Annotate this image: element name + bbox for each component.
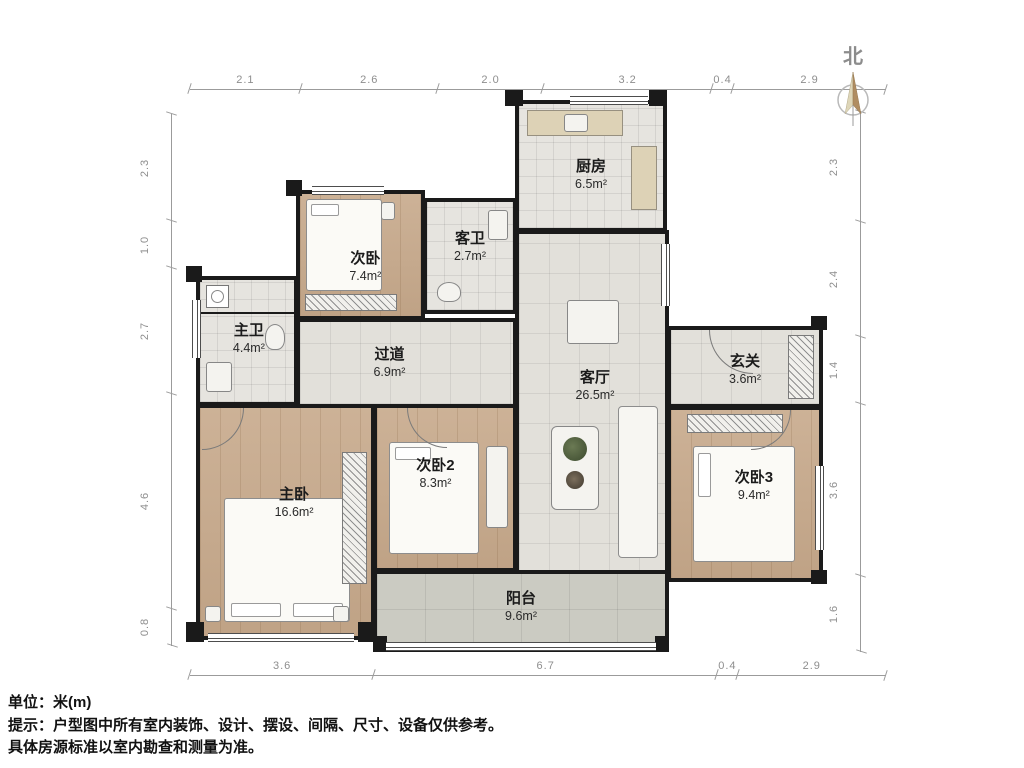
door-icon bbox=[202, 408, 244, 450]
room-name: 客卫 bbox=[454, 227, 486, 248]
room-foyer: 玄关 3.6m² bbox=[667, 326, 823, 408]
dim-segment: 2.6 bbox=[301, 74, 438, 90]
north-label: 北 bbox=[843, 40, 863, 69]
vase-icon bbox=[566, 471, 584, 489]
room-master-bathroom: 主卫 4.4m² bbox=[196, 276, 298, 406]
room-balcony: 阳台 9.6m² bbox=[373, 570, 669, 652]
toilet-icon bbox=[437, 282, 461, 302]
dim-value: 2.4 bbox=[828, 270, 840, 288]
dim-segment: 0.4 bbox=[717, 660, 737, 676]
nightstand-icon bbox=[205, 606, 221, 622]
room-bedroom-north: 次卧 7.4m² bbox=[296, 190, 425, 320]
room-area: 4.4m² bbox=[233, 341, 265, 355]
wall-corner bbox=[649, 90, 667, 106]
dim-segment: 0.4 bbox=[712, 74, 733, 90]
wall-corner bbox=[655, 636, 669, 652]
dim-value: 2.9 bbox=[803, 660, 821, 672]
room-name: 次卧3 bbox=[735, 466, 773, 487]
dim-segment: 2.4 bbox=[845, 222, 861, 337]
bathroom-sink-icon bbox=[206, 362, 232, 392]
dimension-line-top: 2.1 2.6 2.0 3.2 0.4 2.9 bbox=[190, 74, 886, 90]
dim-segment: 2.3 bbox=[156, 114, 172, 221]
desk-icon bbox=[486, 446, 508, 528]
dim-value: 2.6 bbox=[360, 74, 378, 86]
shoe-cabinet-icon bbox=[788, 335, 814, 399]
room-name: 厨房 bbox=[575, 155, 607, 176]
room-area: 9.4m² bbox=[735, 488, 773, 502]
dim-value: 2.7 bbox=[139, 322, 151, 340]
nightstand-icon bbox=[333, 606, 349, 622]
nightstand-icon bbox=[381, 202, 395, 220]
dining-table-icon bbox=[567, 300, 619, 344]
door-icon bbox=[751, 410, 791, 450]
room-area: 6.9m² bbox=[373, 365, 405, 379]
room-label: 玄关 3.6m² bbox=[729, 350, 761, 386]
dim-segment: 0.8 bbox=[156, 609, 172, 646]
coffee-table-icon bbox=[551, 426, 599, 510]
room-master-bedroom: 主卧 16.6m² bbox=[196, 404, 375, 640]
compass-icon bbox=[830, 68, 876, 131]
room-area: 16.6m² bbox=[275, 505, 314, 519]
dim-segment: 3.6 bbox=[190, 660, 374, 676]
wall-corner bbox=[286, 180, 302, 196]
room-bedroom-2: 次卧2 8.3m² bbox=[373, 404, 517, 572]
room-name: 主卧 bbox=[275, 483, 314, 504]
dim-segment: 2.0 bbox=[438, 74, 543, 90]
dimension-line-bottom: 3.6 6.7 0.4 2.9 bbox=[190, 660, 886, 676]
dim-value: 6.7 bbox=[537, 660, 555, 672]
dim-value: 0.4 bbox=[718, 660, 736, 672]
window-icon bbox=[570, 96, 648, 105]
dim-segment: 3.2 bbox=[543, 74, 712, 90]
dim-value: 2.1 bbox=[236, 74, 254, 86]
room-area: 9.6m² bbox=[505, 609, 537, 623]
dim-segment: 2.7 bbox=[156, 268, 172, 394]
kitchen-counter bbox=[527, 110, 623, 136]
room-area: 6.5m² bbox=[575, 177, 607, 191]
kitchen-counter-side bbox=[631, 146, 657, 210]
pillow-icon bbox=[698, 453, 711, 497]
dim-segment: 1.6 bbox=[845, 576, 861, 652]
interior-wall bbox=[200, 312, 294, 314]
disclaimer-line-2: 具体房源标准以室内勘查和测量为准。 bbox=[8, 737, 503, 760]
bed-icon bbox=[693, 446, 795, 562]
wardrobe-icon bbox=[305, 294, 397, 311]
window-icon bbox=[192, 300, 201, 358]
room-name: 次卧2 bbox=[416, 454, 454, 475]
dim-value: 1.4 bbox=[828, 361, 840, 379]
toilet-icon bbox=[265, 324, 285, 350]
room-area: 7.4m² bbox=[349, 269, 381, 283]
room-area: 8.3m² bbox=[416, 476, 454, 490]
dim-value: 2.3 bbox=[139, 159, 151, 177]
room-label: 厨房 6.5m² bbox=[575, 155, 607, 191]
window-icon bbox=[312, 186, 384, 195]
wall-corner bbox=[186, 266, 202, 282]
dim-segment: 6.7 bbox=[374, 660, 717, 676]
room-area: 26.5m² bbox=[575, 388, 614, 402]
room-living-room: 客厅 26.5m² bbox=[515, 230, 669, 578]
dim-value: 1.0 bbox=[139, 236, 151, 254]
room-name: 阳台 bbox=[505, 587, 537, 608]
dim-value: 4.6 bbox=[139, 492, 151, 510]
room-name: 次卧 bbox=[349, 247, 381, 268]
washing-machine-icon bbox=[206, 285, 229, 308]
kitchen-sink-icon bbox=[564, 114, 588, 132]
room-label: 主卫 4.4m² bbox=[233, 319, 265, 355]
room-label: 次卧 7.4m² bbox=[349, 247, 381, 283]
dim-segment: 4.6 bbox=[156, 394, 172, 609]
pillow-icon bbox=[311, 204, 339, 216]
wardrobe-icon bbox=[342, 452, 367, 584]
floor-plan-canvas: 2.1 2.6 2.0 3.2 0.4 2.9 3.6 6.7 0.4 2.9 … bbox=[0, 0, 1024, 768]
unit-note: 单位：米(m) bbox=[8, 692, 503, 715]
sofa-icon bbox=[618, 406, 658, 558]
window-icon bbox=[661, 244, 670, 306]
room-label: 客卫 2.7m² bbox=[454, 227, 486, 263]
dim-value: 1.6 bbox=[828, 605, 840, 623]
dimension-line-right: 2.3 2.4 1.4 3.6 1.6 bbox=[845, 112, 861, 652]
room-label: 次卧2 8.3m² bbox=[416, 454, 454, 490]
dim-value: 2.9 bbox=[800, 74, 818, 86]
footer-notes: 单位：米(m) 提示：户型图中所有室内装饰、设计、摆设、间隔、尺寸、设备仅供参考… bbox=[8, 692, 503, 760]
dimension-line-left: 2.3 1.0 2.7 4.6 0.8 bbox=[156, 114, 172, 646]
bay-window-icon bbox=[208, 633, 354, 642]
room-label: 过道 6.9m² bbox=[373, 343, 405, 379]
dim-value: 2.3 bbox=[828, 158, 840, 176]
dim-segment: 2.9 bbox=[738, 660, 886, 676]
room-name: 玄关 bbox=[729, 350, 761, 371]
room-hallway: 过道 6.9m² bbox=[296, 318, 517, 408]
wall-corner bbox=[811, 316, 827, 330]
dim-value: 3.6 bbox=[828, 480, 840, 498]
room-label: 主卧 16.6m² bbox=[275, 483, 314, 519]
dim-value: 0.8 bbox=[139, 618, 151, 636]
window-icon bbox=[815, 466, 824, 550]
wall-corner bbox=[186, 622, 204, 642]
wall-corner bbox=[505, 90, 523, 106]
pillow-icon bbox=[231, 603, 281, 617]
room-label: 客厅 26.5m² bbox=[575, 366, 614, 402]
bathroom-sink-icon bbox=[488, 210, 508, 240]
wall-corner bbox=[373, 636, 387, 652]
room-label: 次卧3 9.4m² bbox=[735, 466, 773, 502]
room-area: 3.6m² bbox=[729, 372, 761, 386]
room-area: 2.7m² bbox=[454, 249, 486, 263]
wall-corner bbox=[811, 570, 827, 584]
plant-icon bbox=[563, 437, 587, 461]
dim-segment: 1.0 bbox=[156, 221, 172, 268]
dim-segment: 1.4 bbox=[845, 337, 861, 404]
dim-segment: 2.1 bbox=[190, 74, 301, 90]
window-icon bbox=[386, 642, 656, 651]
room-name: 主卫 bbox=[233, 319, 265, 340]
room-label: 阳台 9.6m² bbox=[505, 587, 537, 623]
room-guest-bathroom: 客卫 2.7m² bbox=[423, 198, 517, 314]
dim-segment: 3.6 bbox=[845, 404, 861, 576]
dim-value: 3.6 bbox=[273, 660, 291, 672]
dim-value: 0.4 bbox=[713, 74, 731, 86]
dim-value: 3.2 bbox=[618, 74, 636, 86]
disclaimer-line-1: 提示：户型图中所有室内装饰、设计、摆设、间隔、尺寸、设备仅供参考。 bbox=[8, 715, 503, 738]
room-name: 过道 bbox=[373, 343, 405, 364]
room-bedroom-3: 次卧3 9.4m² bbox=[667, 406, 823, 582]
room-kitchen: 厨房 6.5m² bbox=[515, 100, 667, 232]
room-name: 客厅 bbox=[575, 366, 614, 387]
dim-value: 2.0 bbox=[481, 74, 499, 86]
